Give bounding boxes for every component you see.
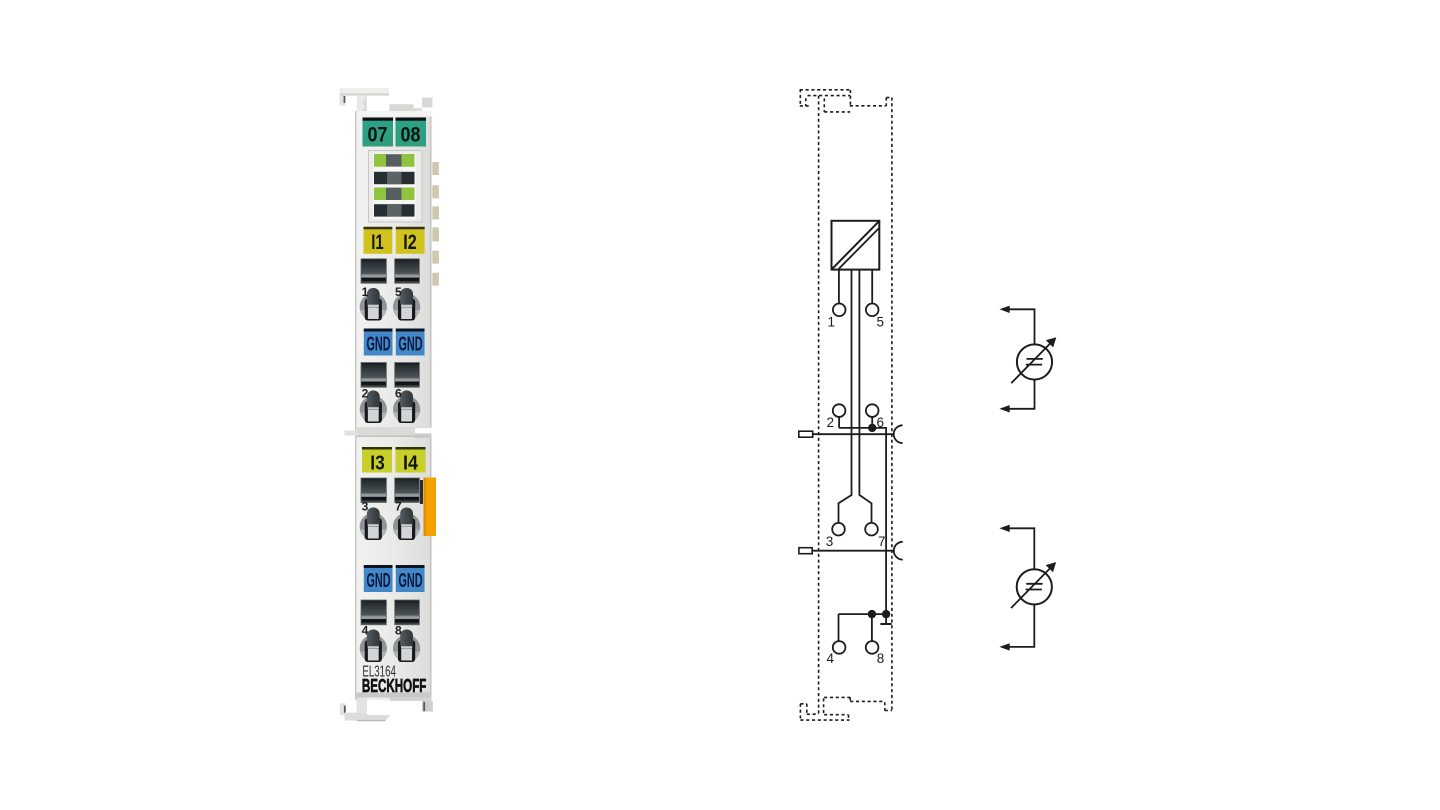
- svg-text:7: 7: [878, 534, 886, 549]
- svg-text:3: 3: [362, 500, 369, 514]
- svg-text:2: 2: [362, 387, 369, 401]
- svg-text:1: 1: [828, 315, 836, 330]
- svg-text:GND: GND: [399, 570, 423, 592]
- svg-text:4: 4: [827, 651, 835, 666]
- svg-text:GND: GND: [399, 333, 423, 355]
- svg-text:I1: I1: [371, 231, 384, 254]
- svg-text:1: 1: [362, 285, 369, 299]
- svg-text:5: 5: [395, 285, 402, 299]
- svg-text:3: 3: [826, 534, 834, 549]
- svg-text:8: 8: [877, 651, 885, 666]
- svg-text:I3: I3: [370, 453, 385, 475]
- svg-text:GND: GND: [367, 570, 391, 592]
- svg-text:07: 07: [368, 123, 388, 146]
- svg-text:7: 7: [395, 500, 402, 514]
- svg-text:5: 5: [877, 315, 885, 330]
- svg-text:GND: GND: [367, 333, 391, 355]
- svg-text:I2: I2: [403, 231, 417, 254]
- svg-text:I4: I4: [403, 453, 419, 475]
- svg-text:4: 4: [362, 624, 369, 638]
- svg-text:8: 8: [395, 624, 402, 638]
- svg-text:08: 08: [401, 123, 421, 146]
- svg-text:6: 6: [395, 387, 402, 401]
- svg-text:2: 2: [827, 415, 835, 430]
